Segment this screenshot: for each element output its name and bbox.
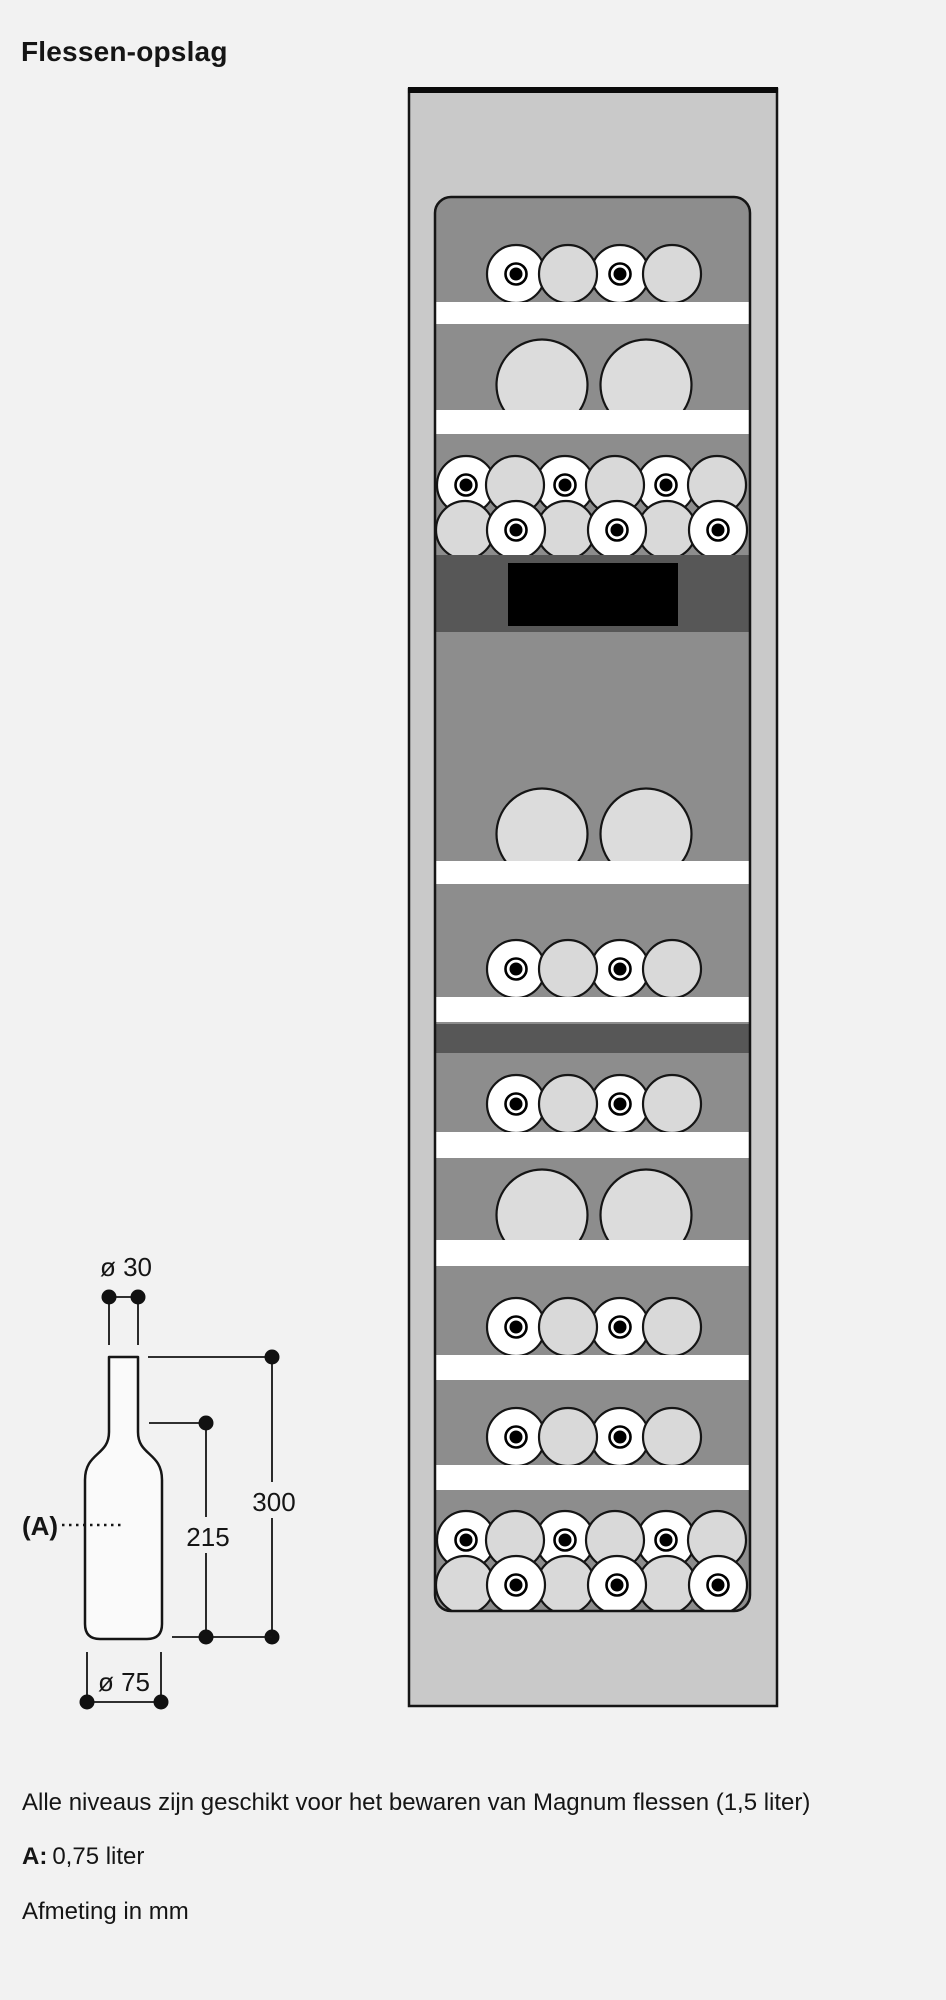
note-a-key: A: (22, 1843, 47, 1870)
dim-dot (265, 1350, 280, 1365)
page: Flessen-opslag ø 30 (A) 300 (0, 0, 946, 2000)
dim-dot (199, 1416, 214, 1431)
body-diameter-label: ø 75 (98, 1667, 150, 1697)
bottle-outline (85, 1357, 162, 1639)
note-a-value: 0,75 liter (52, 1843, 144, 1870)
bottle-dimension-diagram: ø 30 (A) 300 215 (0, 0, 946, 2000)
bottle-a-label: (A) (22, 1511, 58, 1541)
dim-shoulder-height: 215 (149, 1416, 272, 1645)
dim-dot (80, 1695, 95, 1710)
note-a-capacity: A:0,75 liter (22, 1843, 144, 1871)
note-units: Afmeting in mm (22, 1898, 189, 1926)
dim-dot (199, 1630, 214, 1645)
dim-total-height: 300 (148, 1350, 298, 1645)
shoulder-height-label: 215 (186, 1522, 229, 1552)
dim-dot (154, 1695, 169, 1710)
dim-dot (131, 1290, 146, 1305)
note-magnum: Alle niveaus zijn geschikt voor het bewa… (22, 1789, 810, 1817)
total-height-label: 300 (252, 1487, 295, 1517)
dim-neck-diameter: ø 30 (100, 1252, 152, 1345)
neck-diameter-label: ø 30 (100, 1252, 152, 1282)
dim-dot (102, 1290, 117, 1305)
dim-body-diameter: ø 75 (80, 1652, 169, 1710)
